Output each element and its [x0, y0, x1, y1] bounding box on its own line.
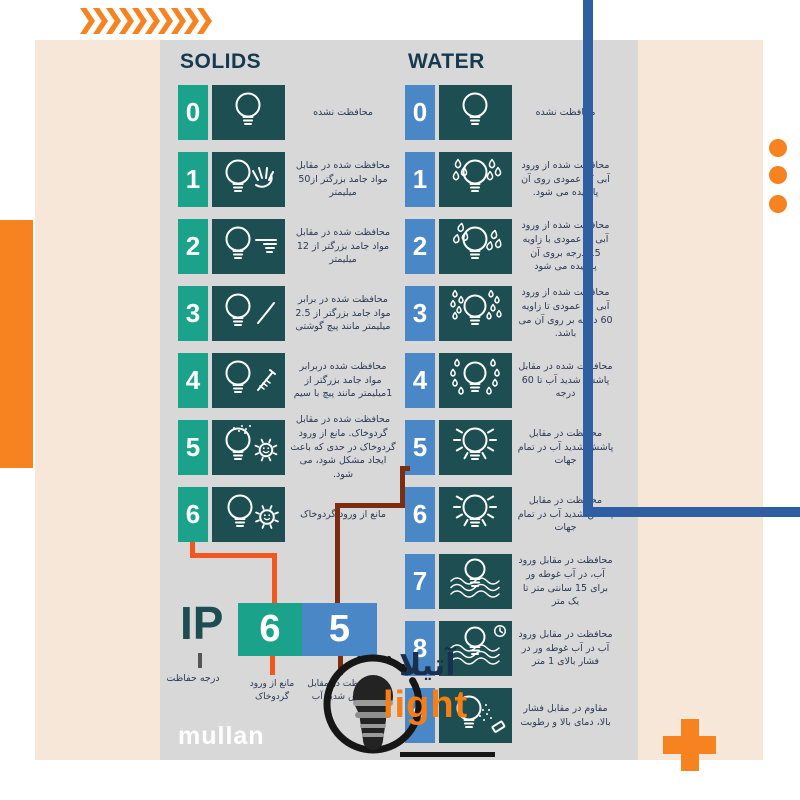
solids-connector-line — [190, 553, 277, 558]
solids-row-0: 0محافظت نشده — [178, 85, 396, 140]
water-level-8-description: محافظت در مقابل ورود آب در آب غوطه ور در… — [517, 621, 614, 676]
solids-level-0-tile: 0 — [178, 85, 208, 140]
water-row-7: 7محافظت در مقابل ورود آب، در آب غوطه ور … — [405, 554, 614, 609]
bulb-splash-icon — [439, 353, 512, 408]
solids-row-4: 4محافظت شده دربرابر مواد جامد بزرگتر از … — [178, 353, 396, 408]
solids-row-6: 6 مانع از ورود گردوخاک — [178, 487, 396, 542]
solids-level-2-description: محافظت شده در مقابل مواد جامد بزرگتر از … — [290, 219, 396, 274]
solids-row-2: 2محافظت شده در مقابل مواد جامد بزرگتر از… — [178, 219, 396, 274]
water-level-1-tile: 1 — [405, 152, 435, 207]
water-level-6-tile: 6 — [405, 487, 435, 542]
water-level-4-tile: 4 — [405, 353, 435, 408]
solids-level-5-tile: 5 — [178, 420, 208, 475]
solids-level-6-tile: 6 — [178, 487, 208, 542]
solids-column-header: SOLIDS — [180, 50, 261, 74]
solids-row-1: 1محافظت شده در مقابل مواد جامد بزرگتر از… — [178, 152, 396, 207]
water-level-0-description: محافظت نشده — [517, 85, 614, 140]
bulb-screwdriver-icon — [212, 286, 285, 341]
water-level-9-description: مقاوم در مقابل فشار بالا، دمای بالا و رط… — [517, 688, 614, 743]
water-level-5-description: محافظت در مقابل پاشش شدید آب در تمام جها… — [517, 420, 614, 475]
solids-level-6-description: مانع از ورود گردوخاک — [290, 487, 396, 542]
water-level-3-description: محافظت شده از ورود آبی که عمودی تا زاویه… — [517, 286, 614, 341]
water-level-0-tile: 0 — [405, 85, 435, 140]
solids-level-3-tile: 3 — [178, 286, 208, 341]
water-level-2-tile: 2 — [405, 219, 435, 274]
bulb-jet-icon — [439, 420, 512, 475]
brand-logo: آتیلا light — [315, 640, 510, 765]
solids-level-3-description: محافظت شده در برابر مواد جامد بزرگتر از … — [290, 286, 396, 341]
solids-connector-line — [272, 553, 277, 603]
bulb-drops-tilt-icon — [439, 219, 512, 274]
orange-dot — [769, 166, 787, 184]
bulb-hand-icon — [212, 152, 285, 207]
water-level-1-description: محافظت شده از ورود آبی که عمودی روی آن پ… — [517, 152, 614, 207]
bulb-screw-icon — [212, 353, 285, 408]
ip-digit-solids-tile: 6 — [238, 603, 302, 656]
bulb-icon — [212, 85, 285, 140]
solids-level-0-description: محافظت نشده — [290, 85, 396, 140]
blue-frame-line — [583, 0, 593, 517]
water-level-7-description: محافظت در مقابل ورود آب، در آب غوطه ور ب… — [517, 554, 614, 609]
solids-level-4-description: محافظت شده دربرابر مواد جامد بزرگتر از 1… — [290, 353, 396, 408]
bulb-finger-icon — [212, 219, 285, 274]
bulb-icon — [439, 85, 512, 140]
bulb-immersion-icon — [439, 554, 512, 609]
orange-side-bar — [0, 220, 33, 468]
bulb-jet-icon — [439, 487, 512, 542]
ip-pointer-dash — [198, 653, 202, 668]
solids-level-4-tile: 4 — [178, 353, 208, 408]
plus-icon — [681, 719, 699, 771]
chevron-arrows-icon — [80, 8, 210, 34]
bulb-gear-icon — [212, 487, 285, 542]
solids-level-1-tile: 1 — [178, 152, 208, 207]
water-connector-line — [335, 503, 405, 508]
infographic-canvas: SOLIDS WATER 0محافظت نشده1محافظت شده در … — [0, 0, 800, 800]
orange-dot — [769, 195, 787, 213]
solids-level-1-description: محافظت شده در مقابل مواد جامد بزرگتر از5… — [290, 152, 396, 207]
ip-solids-caption: مانع از ورود گردوخاک — [232, 678, 312, 703]
logo-english-text: light — [383, 684, 468, 727]
blue-frame-line — [583, 507, 800, 517]
water-level-7-tile: 7 — [405, 554, 435, 609]
water-connector-line — [400, 466, 405, 508]
solids-level-2-tile: 2 — [178, 219, 208, 274]
ip-caption: درجه حفاظت — [158, 673, 228, 684]
water-level-4-description: محافظت شده در مقابل پاشش شدید آب تا 60 د… — [517, 353, 614, 408]
ip-label: IP — [180, 596, 223, 650]
solids-connector-line — [270, 656, 275, 675]
solids-row-3: 3محافظت شده در برابر مواد جامد بزرگتر از… — [178, 286, 396, 341]
water-level-2-description: محافظت شده از ورود آبی به عمودی با زاویه… — [517, 219, 614, 274]
logo-farsi-text: آتیلا — [399, 648, 456, 683]
water-connector-line — [335, 503, 340, 603]
solids-level-5-description: محافظت شده در مقابل گردوخاک. مانع از ورو… — [290, 420, 396, 475]
bulb-spray-icon — [439, 286, 512, 341]
bulb-drops-icon — [439, 152, 512, 207]
bulb-dust-icon — [212, 420, 285, 475]
water-column-header: WATER — [408, 50, 485, 74]
maker-wordmark: mullan — [178, 722, 265, 751]
logo-underline — [400, 752, 495, 757]
water-level-3-tile: 3 — [405, 286, 435, 341]
orange-dot — [769, 139, 787, 157]
solids-row-5: 5 محافظت شده در مقابل گردوخاک. مانع از و… — [178, 420, 396, 475]
